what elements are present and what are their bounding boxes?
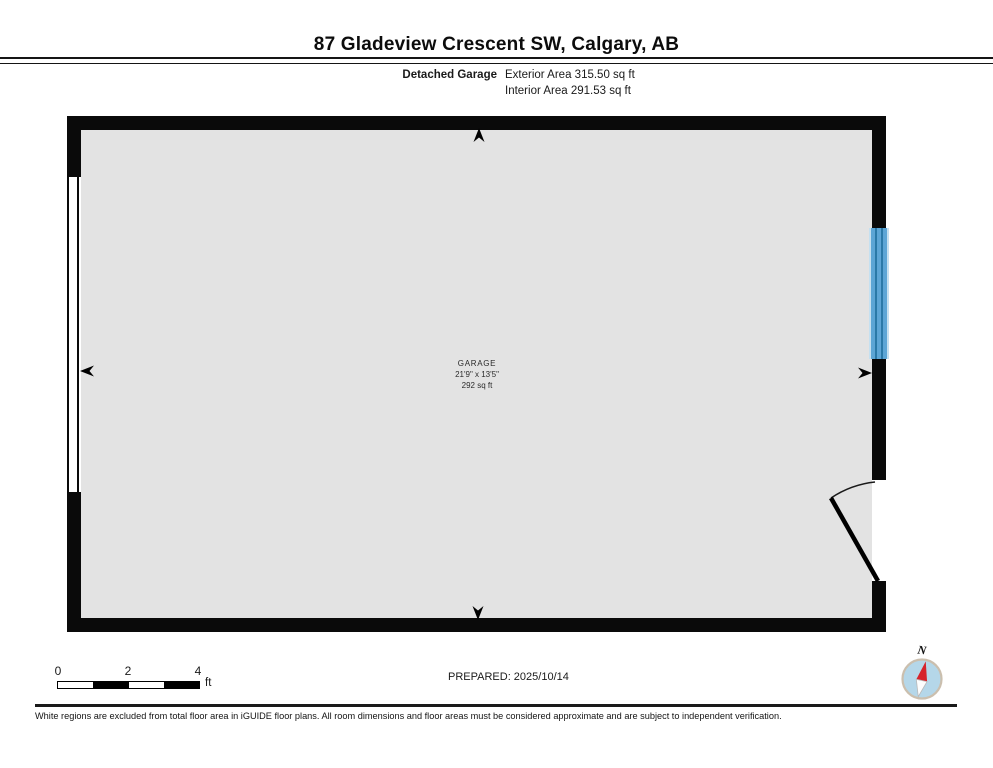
window — [869, 228, 889, 359]
room-label: GARAGE 21'9" x 13'5" 292 sq ft — [377, 358, 577, 391]
room-dimensions: 21'9" x 13'5" — [377, 369, 577, 380]
footer-divider — [35, 704, 957, 707]
header-divider — [0, 57, 993, 64]
compass-icon: N — [896, 642, 948, 704]
wall-right-lower — [872, 581, 886, 632]
wall-bottom — [67, 618, 886, 632]
scale-bar — [57, 681, 200, 689]
interior-area-value: Interior Area 291.53 sq ft — [505, 85, 631, 97]
scale-segment — [58, 682, 93, 688]
room-name: GARAGE — [377, 358, 577, 369]
wall-left-lower — [67, 492, 81, 632]
scale-segment — [93, 682, 128, 688]
prepared-date: PREPARED: 2025/10/14 — [448, 671, 569, 683]
disclaimer-text: White regions are excluded from total fl… — [35, 711, 965, 721]
scale-tick-4: 4 — [195, 664, 202, 678]
exterior-area-value: Exterior Area 315.50 sq ft — [505, 69, 635, 81]
scale-tick-2: 2 — [125, 664, 132, 678]
scale-segment — [129, 682, 164, 688]
page-title: 87 Gladeview Crescent SW, Calgary, AB — [0, 34, 993, 56]
room-area: 292 sq ft — [377, 380, 577, 391]
scale-unit-label: ft — [205, 677, 211, 689]
garage-door — [67, 177, 79, 492]
wall-right-middle — [872, 359, 886, 480]
window-pane-line — [881, 228, 883, 359]
wall-right-upper — [872, 116, 886, 228]
window-pane-line — [875, 228, 877, 359]
scale-tick-0: 0 — [55, 664, 62, 678]
wall-left-upper — [67, 116, 81, 177]
compass-north-label: N — [916, 642, 929, 657]
scale-segment — [164, 682, 199, 688]
wall-top — [67, 116, 886, 130]
floor-name-label: Detached Garage — [402, 69, 497, 81]
